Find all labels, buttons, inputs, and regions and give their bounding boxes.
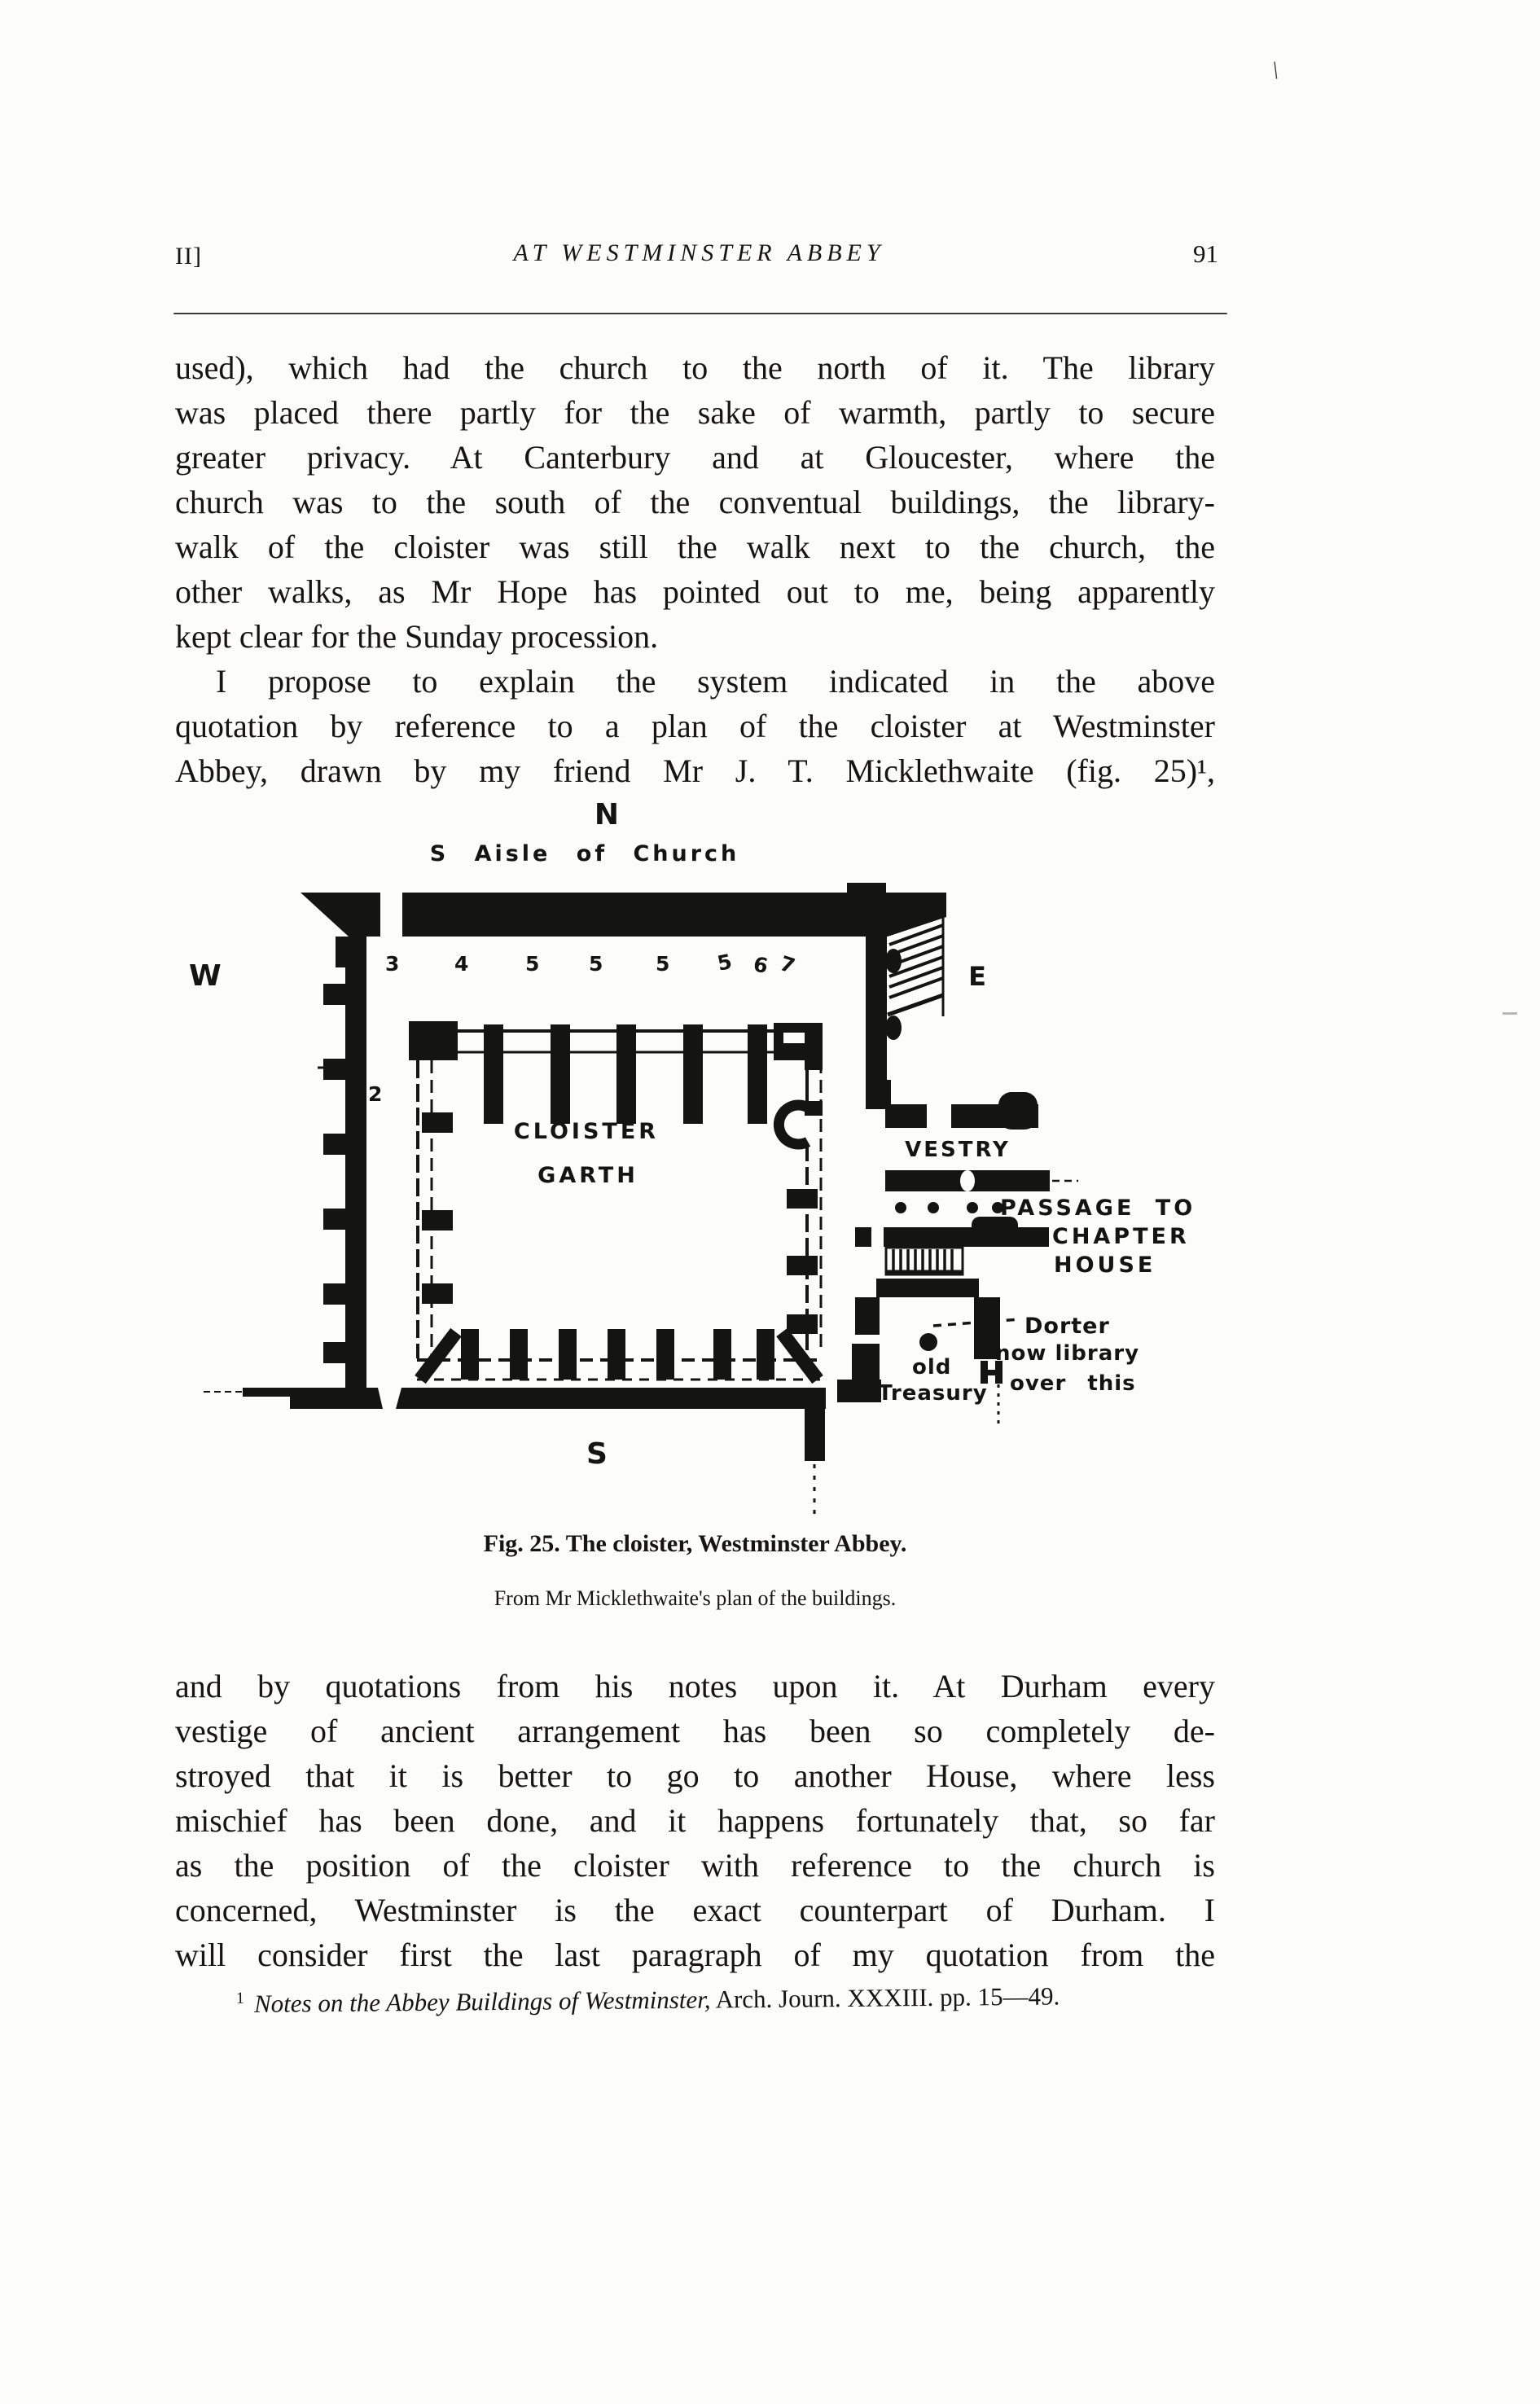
bay-number-west: 2 <box>368 1082 382 1106</box>
body-text-line: walk of the cloister was still the walk … <box>175 524 1215 569</box>
treasury-label-line2: Treasury <box>878 1381 988 1406</box>
compass-east-label: E <box>968 961 986 992</box>
compass-south-label: S <box>586 1437 608 1471</box>
bay-number: 3 <box>385 952 399 976</box>
dorter-label: Dorter <box>1024 1314 1110 1339</box>
passage-label-line3: HOUSE <box>1054 1252 1156 1278</box>
running-head-title: AT WESTMINSTER ABBEY <box>175 239 1223 267</box>
figure-credit: From Mr Micklethwaite's plan of the buil… <box>175 1586 1215 1611</box>
page-number: 91 <box>1193 239 1218 269</box>
aisle-label: S Aisle of Church <box>430 841 740 866</box>
bay-number: 5 <box>656 952 669 976</box>
body-text-line: mischief has been done, and it happens f… <box>175 1798 1215 1843</box>
body-text-line: quotation by reference to a plan of the … <box>175 704 1215 748</box>
paragraph-2: I propose to explain the system indicate… <box>175 659 1215 793</box>
garth-label-line1: CLOISTER <box>514 1119 659 1144</box>
body-text-line: as the position of the cloister with ref… <box>175 1843 1215 1888</box>
compass-north-label: N <box>595 798 619 831</box>
figure-caption: Fig. 25. The cloister, Westminster Abbey… <box>175 1530 1215 1558</box>
body-text-line: church was to the south of the conventua… <box>175 480 1215 524</box>
passage-door-dots <box>895 1202 1003 1213</box>
garth-label-line2: GARTH <box>537 1163 638 1188</box>
body-text-line: stroyed that it is better to go to anoth… <box>175 1753 1215 1798</box>
footnote-reference: Arch. Journ. XXXIII. pp. 15—49. <box>710 1981 1060 2013</box>
paragraph-1: used), which had the church to the north… <box>175 345 1215 659</box>
body-text-line: was placed there partly for the sake of … <box>175 390 1215 435</box>
passage-label-line1: PASSAGE TO <box>1000 1195 1196 1221</box>
header-rule <box>173 313 1227 314</box>
body-text-line: used), which had the church to the north… <box>175 345 1215 390</box>
paragraph-3: and by quotations from his notes upon it… <box>175 1664 1215 1977</box>
body-text-line: kept clear for the Sunday procession. <box>175 614 1215 659</box>
compass-west-label: W <box>189 959 222 993</box>
vestry-label: VESTRY <box>905 1138 1011 1162</box>
bay-number: 4 <box>454 952 468 976</box>
cloister-plan-figure: N S Aisle of Church W E S CLOISTER GARTH… <box>0 782 1540 1531</box>
body-text-line: I propose to explain the system indicate… <box>175 659 1215 704</box>
body-text-line: greater privacy. At Canterbury and at Gl… <box>175 435 1215 480</box>
bay-number: 5 <box>525 952 539 976</box>
body-text-line: other walks, as Mr Hope has pointed out … <box>175 569 1215 614</box>
running-head: II] AT WESTMINSTER ABBEY 91 <box>175 238 1223 282</box>
bay-number: 6 <box>752 952 770 978</box>
footnote-marker: 1 <box>236 1989 244 2007</box>
passage-label-line2: CHAPTER <box>1052 1224 1190 1249</box>
body-text-line: vestige of ancient arrangement has been … <box>175 1709 1215 1753</box>
book-page: II] AT WESTMINSTER ABBEY 91 \ used), whi… <box>0 0 1540 2404</box>
footnote: 1Notes on the Abbey Buildings of Westmin… <box>175 1979 1287 2019</box>
body-text-line: will consider first the last paragraph o… <box>175 1932 1215 1977</box>
body-text-line: and by quotations from his notes upon it… <box>175 1664 1215 1709</box>
body-text-line: concerned, Westminster is the exact coun… <box>175 1888 1215 1932</box>
dorter-note-line2: over this <box>1010 1371 1136 1396</box>
bay-number: 7 <box>777 951 798 978</box>
dorter-note-line1: now library <box>995 1341 1139 1366</box>
bay-number: 5 <box>715 950 734 976</box>
treasury-label-line1: old <box>912 1355 951 1380</box>
bay-number: 5 <box>589 952 603 976</box>
footnote-title: Notes on the Abbey Buildings of Westmins… <box>254 1985 711 2018</box>
scan-artifact-mark: \ <box>1270 57 1282 86</box>
